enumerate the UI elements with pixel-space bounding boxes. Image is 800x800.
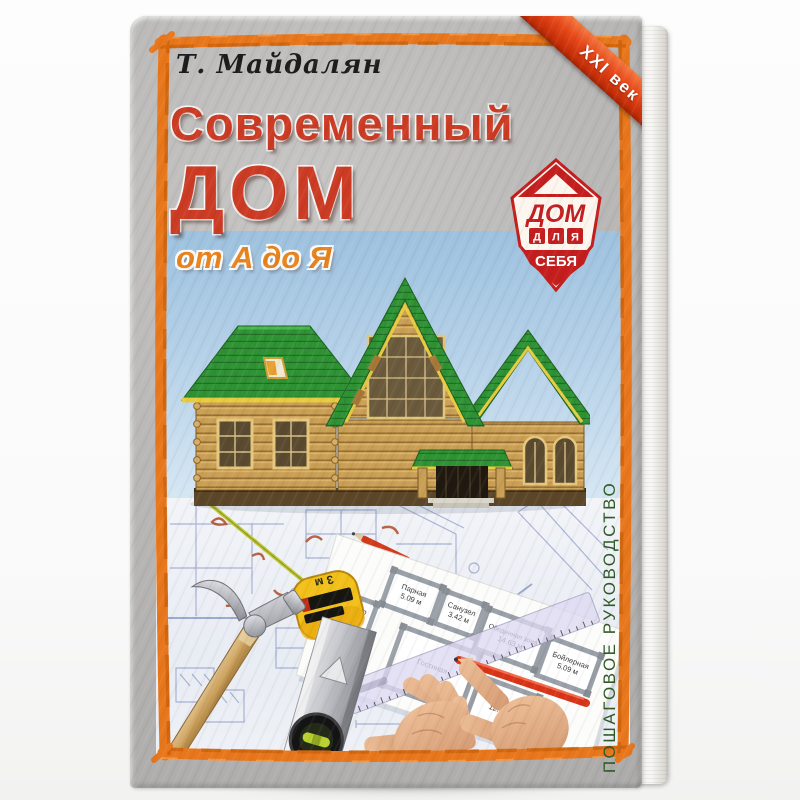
svg-text:Д: Д [533, 232, 541, 244]
series-vertical-label: ПОШАГОВОЕ РУКОВОДСТВО [599, 485, 621, 769]
svg-text:Л: Л [552, 232, 560, 244]
subtitle: от А до Я [176, 240, 436, 276]
title-line-1: Современный [170, 96, 630, 151]
title-line-2: ДОМ [170, 150, 490, 237]
author-name: Т. Майдалян [176, 50, 476, 80]
photo-background: Парная 5.09 м Тамбур 3.44 м Санузел 3.42… [0, 0, 800, 800]
publisher-logo: ДОМ Д Л Я СЕБЯ [508, 158, 604, 294]
svg-text:Я: Я [571, 232, 579, 244]
logo-line-3: СЕБЯ [535, 253, 577, 270]
logo-line-2: Д Л Я [529, 228, 583, 244]
book: Парная 5.09 м Тамбур 3.44 м Санузел 3.42… [130, 16, 670, 794]
front-cover: Парная 5.09 м Тамбур 3.44 м Санузел 3.42… [130, 16, 642, 788]
logo-line-1: ДОМ [525, 200, 587, 228]
